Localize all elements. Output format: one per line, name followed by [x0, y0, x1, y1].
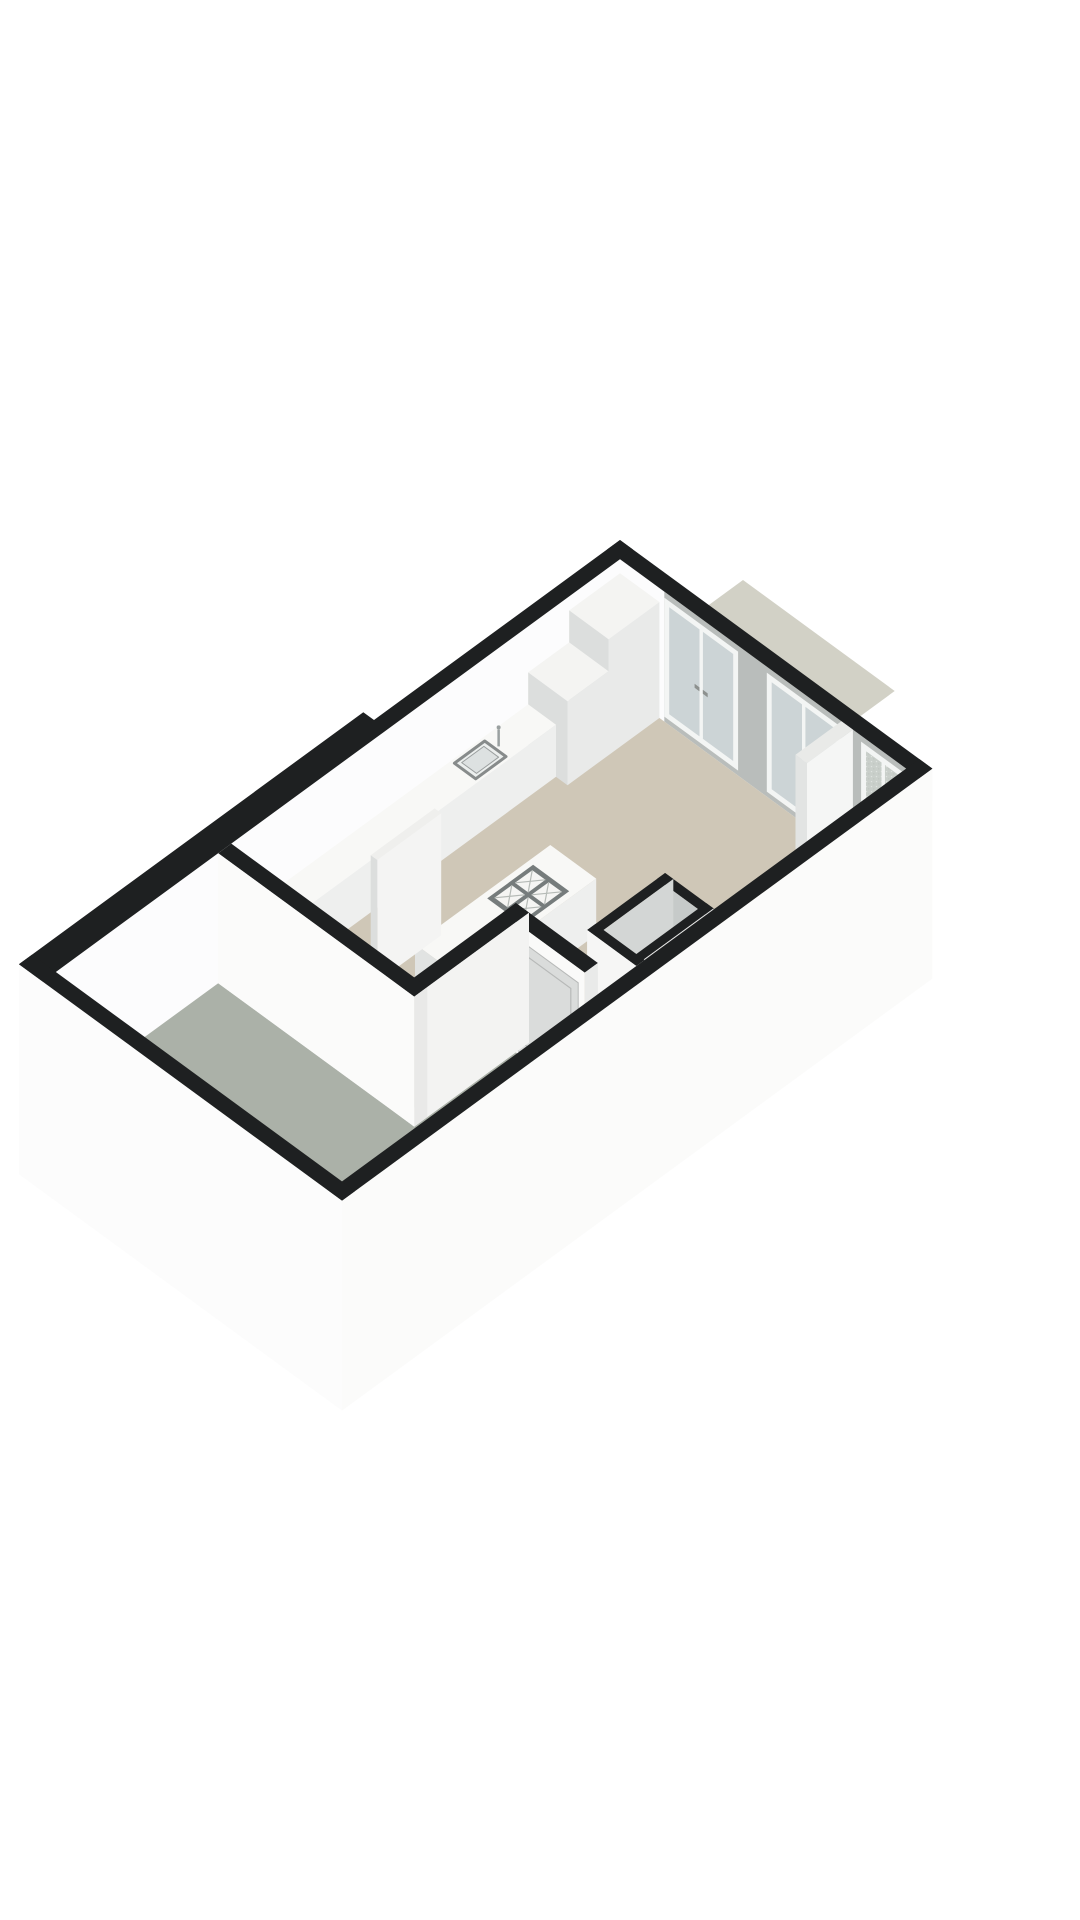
floorplan-svg [0, 0, 1080, 1920]
french-window-1-pane-left [669, 607, 699, 736]
floorplan-viewport [0, 0, 1080, 1920]
kitchen-sink-faucet-head [497, 725, 501, 729]
partition-wall-right-face [414, 987, 427, 1127]
french-window-1-mullion [700, 629, 703, 738]
